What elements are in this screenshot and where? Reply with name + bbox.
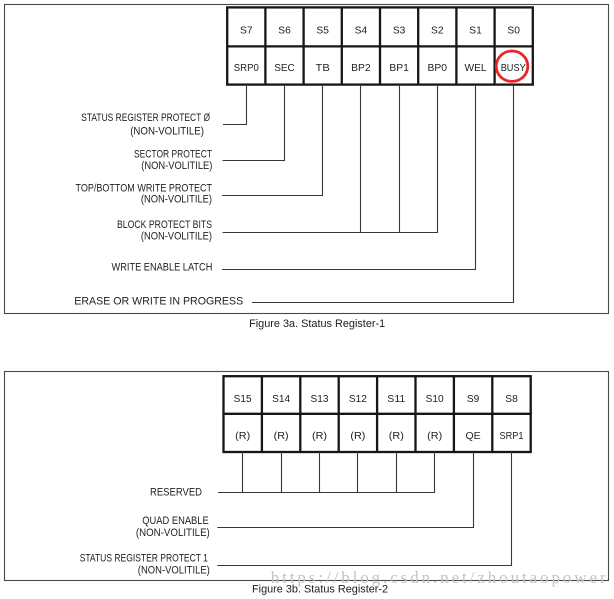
svg-text:S1: S1 <box>469 26 482 37</box>
svg-text:S13: S13 <box>311 394 329 405</box>
svg-text:(R): (R) <box>312 431 327 442</box>
svg-text:(NON-VOLITILE): (NON-VOLITILE) <box>141 160 212 172</box>
svg-text:WEL: WEL <box>465 63 487 74</box>
svg-text:(R): (R) <box>350 431 365 442</box>
svg-text:S14: S14 <box>272 394 290 405</box>
svg-text:WRITE ENABLE LATCH: WRITE ENABLE LATCH <box>112 262 213 274</box>
svg-text:BLOCK PROTECT BITS: BLOCK PROTECT BITS <box>117 219 212 231</box>
svg-text:TOP/BOTTOM WRITE PROTECT: TOP/BOTTOM WRITE PROTECT <box>76 182 213 194</box>
svg-text:(R): (R) <box>389 431 404 442</box>
svg-text:ERASE OR WRITE IN PROGRESS: ERASE OR WRITE IN PROGRESS <box>74 296 243 308</box>
svg-text:(R): (R) <box>274 431 289 442</box>
svg-text:S2: S2 <box>431 26 444 37</box>
svg-text:(NON-VOLITILE): (NON-VOLITILE) <box>130 125 204 137</box>
svg-text:(R): (R) <box>427 431 442 442</box>
svg-text:BP0: BP0 <box>428 63 448 74</box>
svg-text:S15: S15 <box>234 394 252 405</box>
svg-text:S8: S8 <box>505 394 518 405</box>
svg-text:QE: QE <box>466 431 482 442</box>
svg-text:SRP0: SRP0 <box>234 63 259 74</box>
svg-text:(NON-VOLITILE): (NON-VOLITILE) <box>141 230 212 242</box>
svg-text:Figure 3a. Status Register-1: Figure 3a. Status Register-1 <box>249 318 385 330</box>
svg-text:(R): (R) <box>235 431 250 442</box>
svg-text:S5: S5 <box>316 26 329 37</box>
svg-text:BP1: BP1 <box>389 63 409 74</box>
svg-text:BP2: BP2 <box>351 63 371 74</box>
svg-text:SECTOR PROTECT: SECTOR PROTECT <box>134 149 212 161</box>
svg-text:S7: S7 <box>240 26 253 37</box>
svg-text:S3: S3 <box>393 26 406 37</box>
svg-text:S12: S12 <box>349 394 367 405</box>
svg-text:S0: S0 <box>507 26 520 37</box>
svg-text:(NON-VOLITILE): (NON-VOLITILE) <box>136 527 210 539</box>
svg-text:(NON-VOLITILE): (NON-VOLITILE) <box>141 194 212 206</box>
svg-text:S6: S6 <box>278 26 291 37</box>
svg-text:S4: S4 <box>355 26 368 37</box>
svg-text:S11: S11 <box>387 394 405 405</box>
svg-text:SEC: SEC <box>274 63 295 74</box>
svg-text:S9: S9 <box>467 394 480 405</box>
svg-text:RESERVED: RESERVED <box>150 487 202 499</box>
svg-text:STATUS REGISTER PROTECT Ø: STATUS REGISTER PROTECT Ø <box>81 112 210 124</box>
svg-text:SRP1: SRP1 <box>500 431 524 442</box>
svg-text:QUAD ENABLE: QUAD ENABLE <box>142 515 208 527</box>
svg-text:STATUS REGISTER PROTECT 1: STATUS REGISTER PROTECT 1 <box>80 553 208 565</box>
svg-text:BUSY: BUSY <box>501 63 526 74</box>
svg-text:(NON-VOLITILE): (NON-VOLITILE) <box>138 565 210 577</box>
svg-text:TB: TB <box>316 63 331 74</box>
svg-text:S10: S10 <box>426 394 444 405</box>
